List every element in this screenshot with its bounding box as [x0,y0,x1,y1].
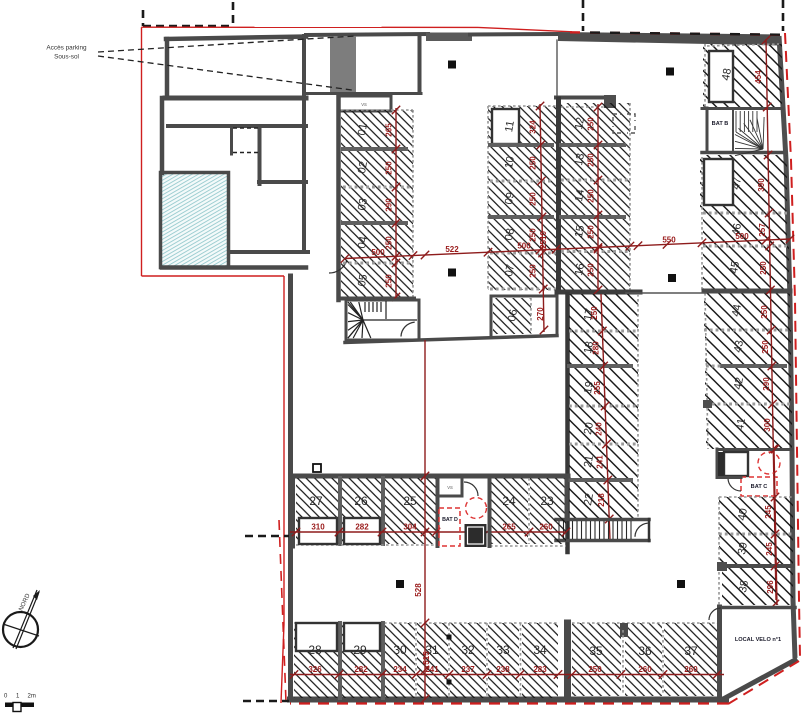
svg-text:250: 250 [587,225,596,239]
svg-text:245: 245 [765,542,774,556]
svg-text:237: 237 [461,665,475,674]
svg-text:250: 250 [385,274,394,288]
svg-text:250: 250 [385,161,394,175]
svg-text:283: 283 [533,665,547,674]
svg-text:34: 34 [533,643,547,657]
svg-text:08: 08 [503,227,517,241]
svg-text:300: 300 [763,418,772,432]
svg-text:26: 26 [354,494,368,508]
svg-text:38: 38 [737,579,751,593]
svg-text:36: 36 [638,644,652,658]
svg-text:326: 326 [308,665,322,674]
svg-text:250: 250 [590,306,599,320]
svg-text:29: 29 [353,643,367,657]
svg-text:41: 41 [734,417,748,431]
svg-text:30: 30 [393,643,407,657]
svg-text:33: 33 [496,643,510,657]
svg-text:VS: VS [361,102,367,107]
svg-text:LOCAL VELO n°1: LOCAL VELO n°1 [735,637,781,643]
svg-text:24: 24 [502,494,516,508]
svg-text:37: 37 [684,644,698,658]
svg-text:265: 265 [502,523,516,532]
svg-text:01: 01 [356,122,370,136]
svg-text:23: 23 [540,494,554,508]
svg-text:250: 250 [588,665,602,674]
svg-text:45: 45 [728,260,742,274]
svg-text:250: 250 [529,228,538,242]
svg-text:47: 47 [730,176,744,190]
svg-text:39: 39 [736,541,750,555]
svg-text:454: 454 [754,70,763,84]
svg-text:22: 22 [582,492,596,506]
svg-text:40: 40 [736,507,750,521]
svg-text:21: 21 [582,454,596,468]
svg-text:VS: VS [447,485,453,490]
svg-text:550: 550 [662,235,676,244]
svg-text:42: 42 [732,376,746,390]
svg-text:296: 296 [766,580,775,594]
svg-text:25: 25 [403,494,417,508]
svg-text:241: 241 [596,455,605,469]
svg-text:282: 282 [355,523,369,532]
svg-text:310: 310 [311,523,325,532]
svg-text:245: 245 [764,505,773,519]
svg-text:515: 515 [422,651,431,665]
svg-text:250: 250 [529,192,538,206]
svg-text:250: 250 [761,340,770,354]
svg-text:10: 10 [503,155,517,169]
svg-text:280: 280 [591,341,600,355]
svg-text:304: 304 [403,523,417,532]
svg-text:250: 250 [529,264,538,278]
svg-text:27: 27 [309,494,323,508]
svg-text:260: 260 [638,665,652,674]
svg-text:05: 05 [356,273,370,287]
svg-text:500: 500 [371,248,385,257]
svg-text:11: 11 [503,120,517,133]
svg-text:390: 390 [757,178,766,192]
svg-text:04: 04 [356,235,370,249]
svg-text:06: 06 [506,308,520,322]
svg-text:28: 28 [308,643,322,657]
svg-text:02: 02 [356,160,370,174]
svg-text:15: 15 [573,224,587,238]
svg-text:16: 16 [573,262,587,276]
svg-text:522: 522 [445,245,459,254]
svg-text:BAT C: BAT C [751,484,768,490]
svg-text:03: 03 [356,197,370,211]
svg-text:14: 14 [573,188,587,202]
svg-text:BAT B: BAT B [712,121,729,127]
svg-text:BAT D: BAT D [442,517,458,523]
svg-text:240: 240 [594,422,603,436]
svg-text:257: 257 [758,223,767,237]
svg-text:35: 35 [589,644,603,658]
svg-text:250: 250 [587,263,596,277]
svg-text:290: 290 [762,377,771,391]
svg-text:260: 260 [684,665,698,674]
svg-text:238: 238 [496,665,510,674]
svg-text:09: 09 [503,191,517,205]
svg-text:Sous-sol: Sous-sol [54,54,79,61]
svg-text:250: 250 [587,153,596,167]
svg-text:43: 43 [732,339,746,353]
svg-text:250: 250 [760,305,769,319]
svg-text:324: 324 [529,120,538,134]
svg-text:234: 234 [393,665,407,674]
svg-text:500: 500 [517,242,531,251]
svg-text:44: 44 [730,303,744,317]
svg-text:500: 500 [735,232,749,241]
svg-text:218: 218 [597,493,606,507]
svg-text:290: 290 [385,198,394,212]
svg-text:12: 12 [573,116,587,130]
svg-text:255: 255 [593,381,602,395]
svg-text:265: 265 [385,123,394,137]
svg-text:260: 260 [539,523,553,532]
svg-text:250: 250 [587,117,596,131]
svg-text:250: 250 [759,261,768,275]
svg-text:Accès parking: Accès parking [46,45,87,52]
svg-text:48: 48 [720,67,734,81]
svg-text:07: 07 [503,263,517,277]
svg-text:2m: 2m [28,694,36,700]
svg-text:250: 250 [529,156,538,170]
svg-text:241: 241 [425,665,439,674]
svg-text:250: 250 [587,189,596,203]
svg-text:250: 250 [385,236,394,250]
svg-text:528: 528 [414,583,423,597]
svg-text:282: 282 [354,665,368,674]
svg-text:13: 13 [573,152,587,166]
svg-text:32: 32 [461,643,475,657]
